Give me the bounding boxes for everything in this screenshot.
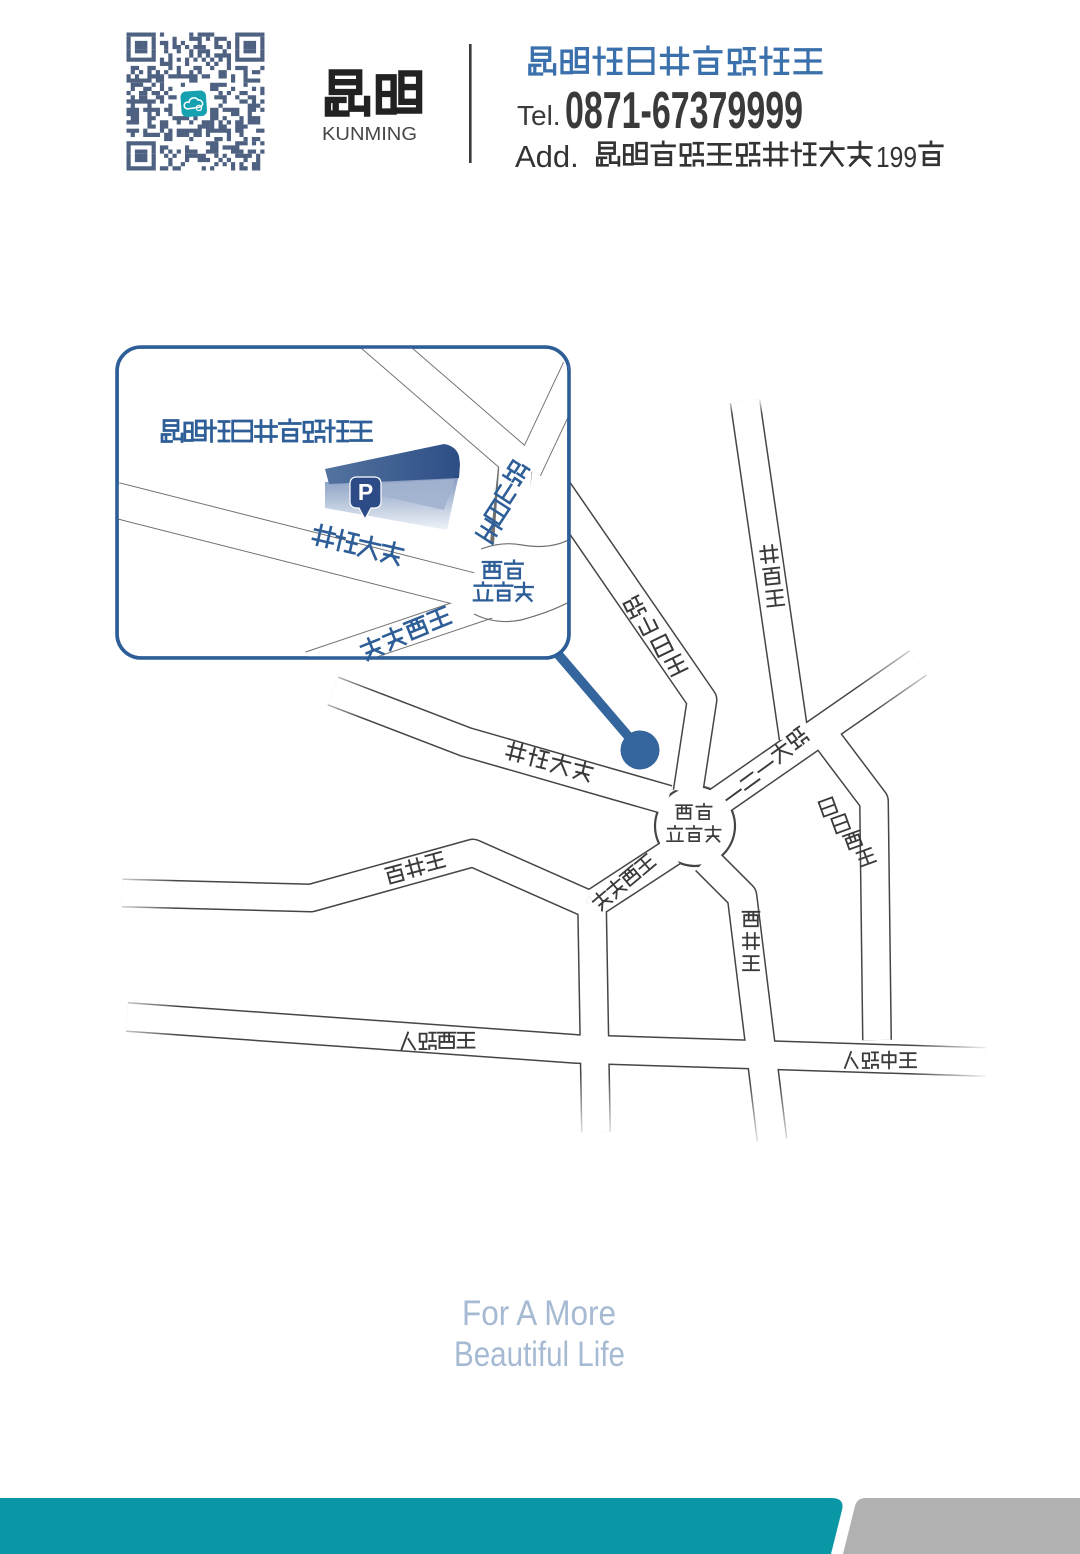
svg-text:P: P xyxy=(358,479,373,505)
svg-text:Tel.: Tel. xyxy=(517,100,561,131)
svg-text:Add.: Add. xyxy=(515,139,579,174)
svg-text:For A More: For A More xyxy=(462,1294,616,1333)
svg-text:199: 199 xyxy=(876,142,917,174)
svg-text:KUNMING: KUNMING xyxy=(322,123,417,144)
svg-text:0871-67379999: 0871-67379999 xyxy=(565,82,803,140)
svg-text:Beautiful Life: Beautiful Life xyxy=(454,1335,625,1374)
